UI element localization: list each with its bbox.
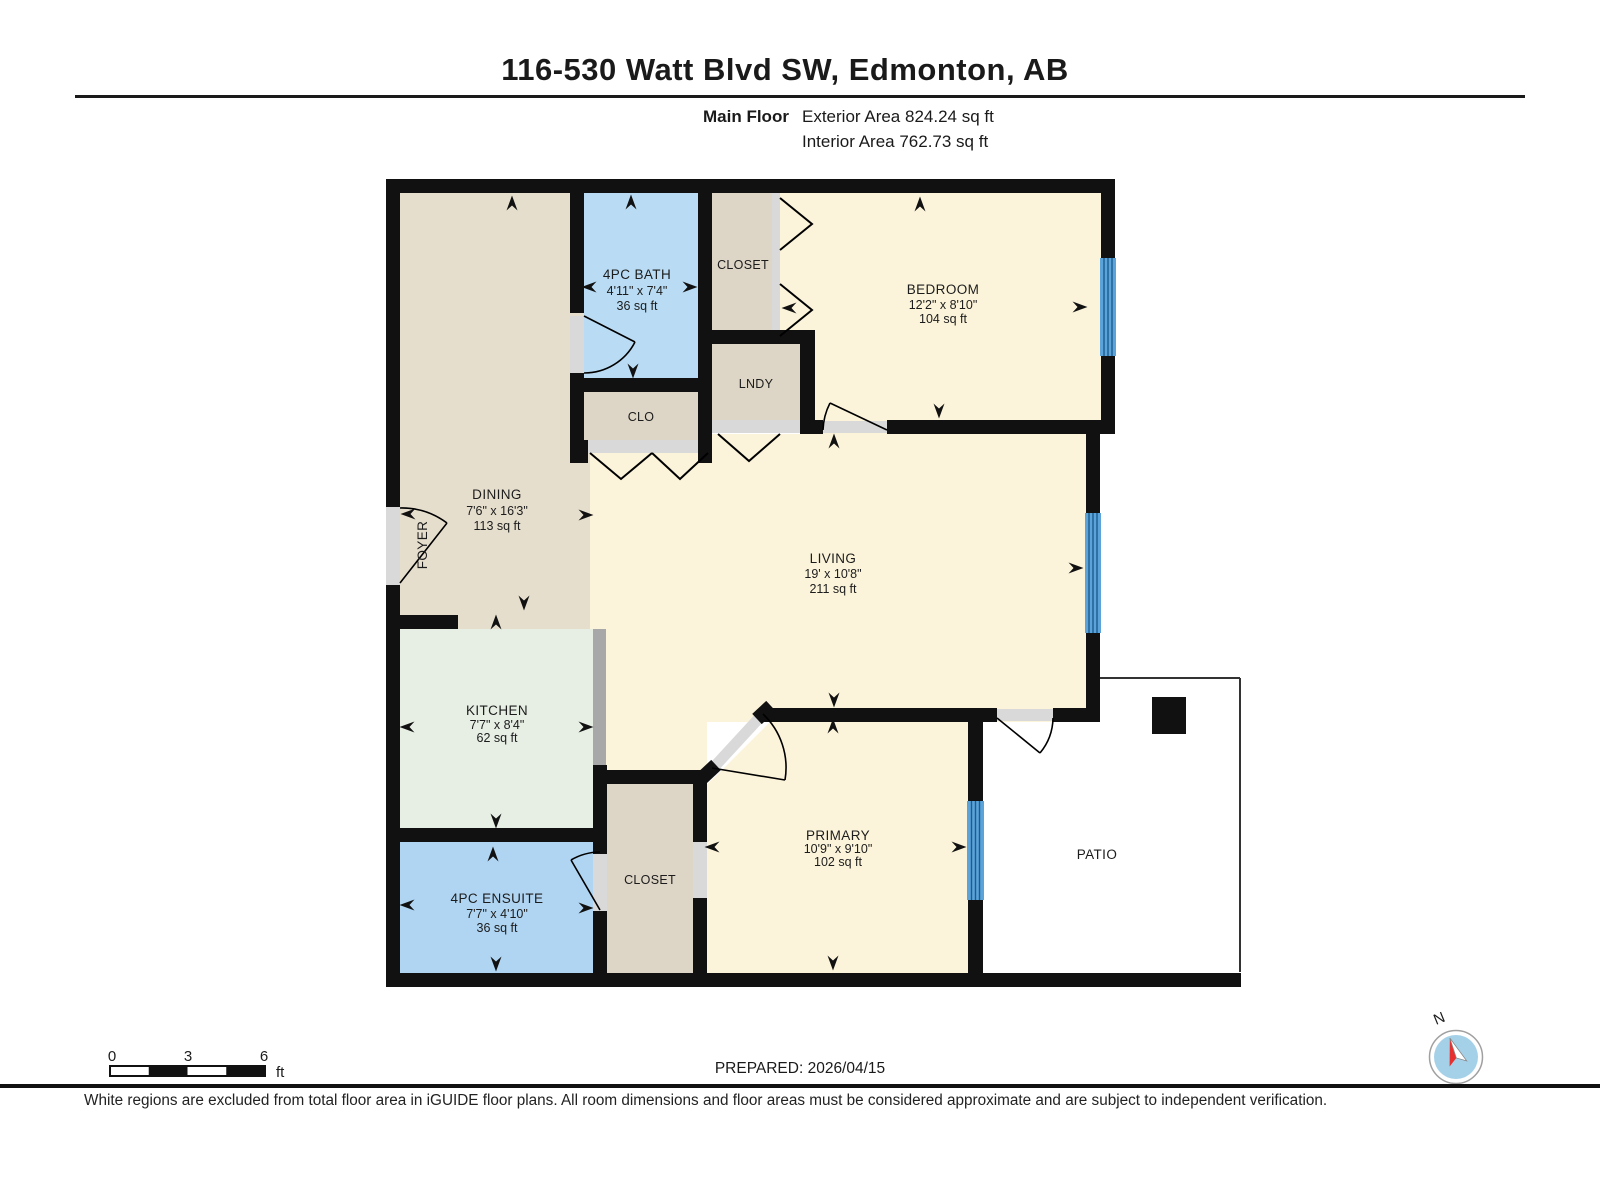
clo-label: CLO [628, 410, 655, 424]
closet-top-label: CLOSET [717, 258, 769, 272]
wall-segment [763, 708, 997, 722]
living-window [1085, 513, 1101, 633]
wall-segment [386, 973, 1241, 987]
room-living-ext [600, 629, 707, 785]
wall-segment [968, 900, 983, 973]
wall-segment [593, 911, 607, 973]
prepared-date: PREPARED: 2026/04/15 [0, 1060, 1600, 1078]
bath-dims: 4'11" x 7'4" [607, 284, 668, 298]
wall-segment [386, 828, 597, 842]
patio-post [1152, 697, 1186, 734]
interior-area-text: Interior Area 762.73 sq ft [802, 132, 988, 152]
ensuite-dims: 7'7" x 4'10" [466, 907, 528, 921]
patio-label: PATIO [1077, 847, 1118, 862]
wall-segment [386, 585, 400, 987]
wall-segment [570, 378, 712, 392]
foyer-label: FOYER [415, 521, 430, 570]
lndy-opening [712, 420, 800, 433]
wall-segment [887, 420, 1115, 434]
closet-bottom-label: CLOSET [624, 873, 676, 887]
living-area: 211 sq ft [809, 582, 857, 596]
wall-segment [1101, 193, 1115, 258]
wall-segment [570, 440, 588, 463]
compass: N [1410, 995, 1510, 1095]
footer-divider [0, 1084, 1600, 1088]
lndy-label: LNDY [739, 377, 774, 391]
bedroom-dims: 12'2" x 8'10" [909, 298, 978, 312]
living-label: LIVING [810, 551, 857, 566]
wall-segment [698, 193, 712, 463]
dining-label: DINING [472, 487, 522, 502]
primary-area: 102 sq ft [814, 855, 862, 869]
wall-segment [1053, 708, 1100, 722]
title-divider [75, 95, 1525, 98]
page-title: 116-530 Watt Blvd SW, Edmonton, AB [0, 52, 1585, 88]
kitchen-area: 62 sq ft [477, 731, 519, 745]
disclaimer-text: White regions are excluded from total fl… [84, 1092, 1327, 1110]
primary-window [967, 801, 984, 900]
ensuite-label: 4PC ENSUITE [451, 891, 544, 906]
wall-segment [386, 615, 458, 629]
dining-dims: 7'6" x 16'3" [466, 504, 528, 518]
dining-area: 113 sq ft [473, 519, 521, 533]
bath-door-opening [570, 316, 584, 373]
wall-segment [800, 330, 815, 434]
floor-label: Main Floor [703, 107, 789, 127]
wall-segment [693, 898, 707, 973]
wall-segment [386, 179, 1115, 193]
compass-north-label: N [1431, 1009, 1447, 1029]
primary-label: PRIMARY [806, 828, 870, 843]
kitchen-counter [593, 629, 606, 766]
foyer-door-opening [386, 507, 400, 585]
bedroom-door-opening [823, 421, 887, 433]
primary-dims: 10'9" x 9'10" [804, 842, 873, 856]
bath-label: 4PC BATH [603, 267, 671, 282]
closet-top-opening [772, 193, 780, 330]
wall-segment [968, 722, 983, 801]
patio-door-opening [997, 709, 1053, 721]
bath-area: 36 sq ft [617, 299, 659, 313]
bedroom-area: 104 sq ft [919, 312, 967, 326]
bedroom-label: BEDROOM [907, 282, 980, 297]
wall-segment [386, 179, 400, 507]
clo-opening [586, 440, 698, 453]
bedroom-window [1100, 258, 1116, 356]
wall-segment [570, 193, 584, 313]
closet-bottom-opening [693, 842, 707, 898]
kitchen-dims: 7'7" x 8'4" [470, 718, 525, 732]
ensuite-area: 36 sq ft [477, 921, 519, 935]
exterior-area-text: Exterior Area 824.24 sq ft [802, 107, 994, 127]
floor-plan: 4PC BATH 4'11" x 7'4" 36 sq ft CLOSET BE… [380, 170, 1250, 995]
wall-segment [1086, 434, 1100, 513]
wall-segment [698, 330, 815, 344]
kitchen-label: KITCHEN [466, 703, 528, 718]
wall-segment [757, 706, 771, 719]
wall-segment [693, 784, 707, 842]
wall-segment [593, 770, 707, 784]
living-dims: 19' x 10'8" [804, 567, 861, 581]
